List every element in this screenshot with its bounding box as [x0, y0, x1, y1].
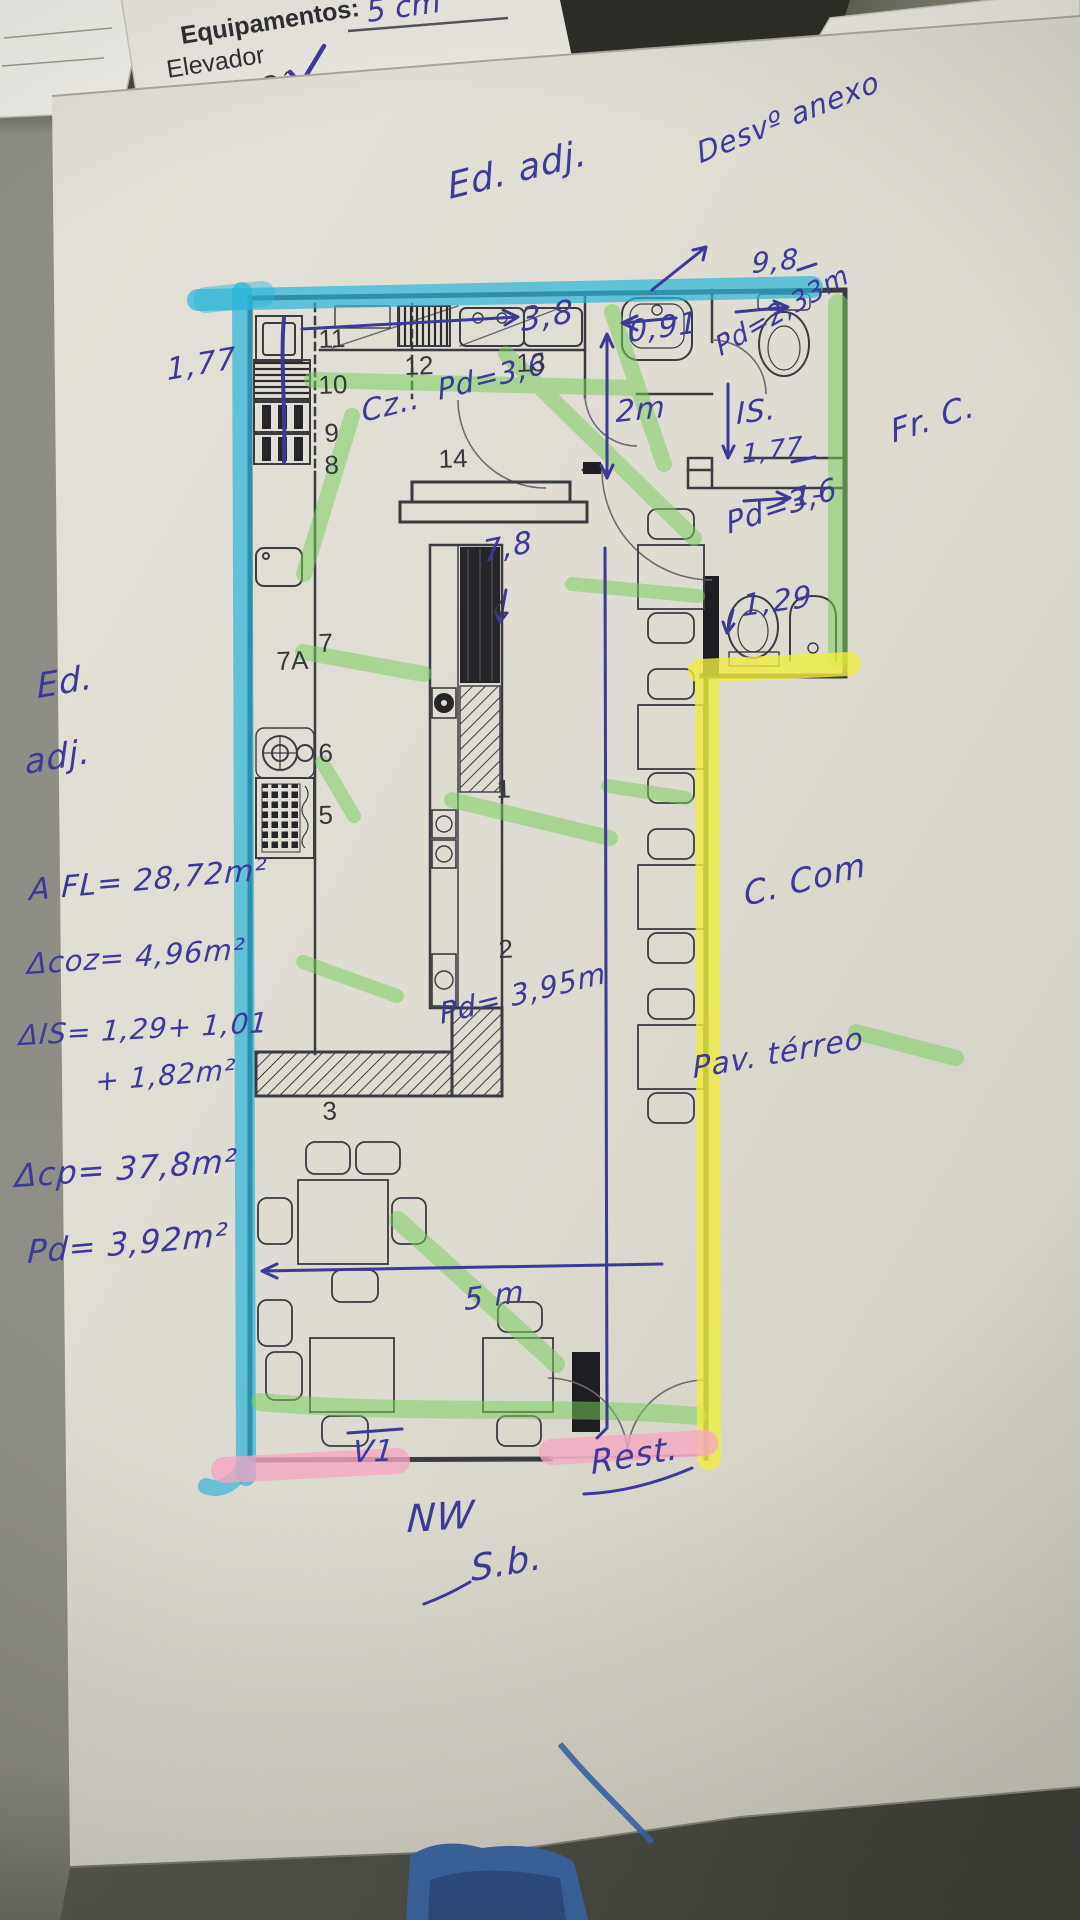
blue-object-shadow — [428, 1870, 566, 1920]
scene-svg: 5 cm Equipamentos: Elevador Rede de Gá t… — [0, 0, 1080, 1920]
photo-of-annotated-floor-plan: 5 cm Equipamentos: Elevador Rede de Gá t… — [0, 0, 1080, 1920]
